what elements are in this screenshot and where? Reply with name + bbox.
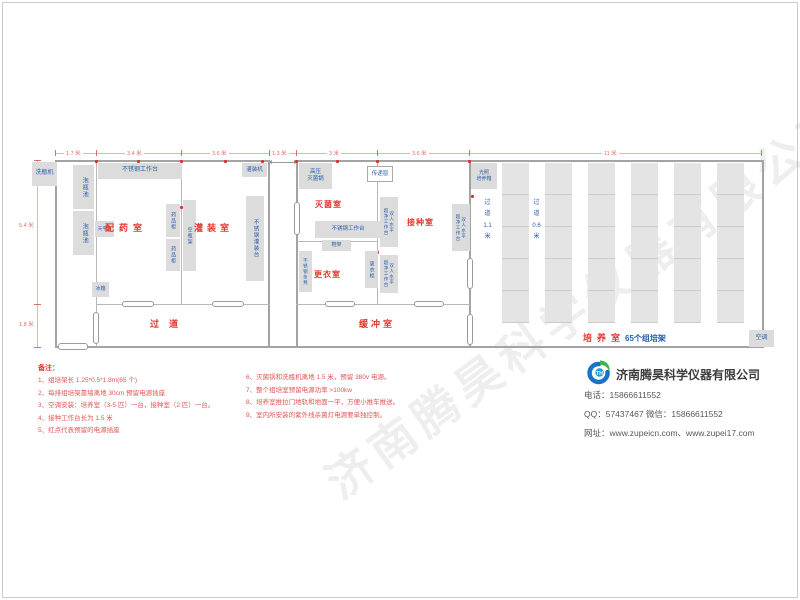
light-incubator: 光照 培养箱	[471, 163, 497, 189]
floor-plan-page: 济南腾昊科学仪器有限公司 1.7 米 3.4 米 3.6 米 1.3 米 3 米…	[0, 0, 800, 600]
dim-tick	[34, 304, 41, 305]
dim-label-3-6m: 3.6 米	[210, 149, 229, 157]
wall	[55, 160, 57, 348]
dim-tick	[96, 150, 97, 156]
notes-left-column: 备注： 1、组培架长 1.25*0.5*1.8m(65 个) 2、每排组培架靠墙…	[38, 363, 248, 441]
sterilization-room-label: 灭菌室	[315, 199, 342, 210]
culture-rack	[674, 163, 701, 323]
dim-tick	[55, 150, 56, 156]
note-item: 7、整个组培室预留电源功率 >100kw	[246, 388, 426, 395]
dim-label-3m: 3 米	[327, 149, 341, 157]
culture-room-caption: 培养室 65个组培架	[583, 331, 666, 344]
air-conditioner: 空调	[749, 330, 774, 347]
pass-window: 传递窗	[367, 166, 393, 182]
medicine-cabinet: 药品柜	[166, 204, 180, 237]
logo-swirl-icon: TH	[585, 359, 613, 387]
autoclave: 高压 灭菌锅	[299, 163, 332, 189]
stainless-worktable: 不锈钢工作台	[315, 221, 381, 238]
inoculation-room-label: 接种室	[407, 217, 434, 228]
culture-rack	[502, 163, 529, 323]
clean-bench: 双人水平 超净工作台	[452, 204, 470, 251]
fridge: 冰箱	[92, 282, 109, 297]
culture-rack	[588, 163, 615, 323]
dim-tick	[469, 150, 470, 156]
note-item: 9、室内所安装的紫外线杀菌灯电源要单独控制。	[246, 413, 426, 420]
dim-tick	[761, 150, 762, 156]
bottle-soaking-pool: 泡瓶池	[73, 165, 94, 209]
note-item: 8、培养室推拉门地轨和地面一平，方便小推车推送。	[246, 400, 426, 407]
note-item: 5、红点代表预留的电源插座	[38, 428, 248, 435]
wall	[268, 160, 270, 348]
door	[58, 343, 88, 350]
wall	[55, 160, 270, 162]
power-socket-dot	[224, 160, 227, 163]
aisle-width-label: 过道 0.6 米	[531, 198, 542, 244]
note-item: 1、组培架长 1.25*0.5*1.8m(65 个)	[38, 378, 248, 385]
filling-machine: 灌装机	[242, 163, 267, 177]
dim-label-3-6m-b: 3.6 米	[410, 149, 429, 157]
note-item: 3、空调安装：培养室（3-5 匹）一台，接种室（2 匹）一台。	[38, 403, 248, 410]
power-socket-dot	[336, 160, 339, 163]
power-socket-dot	[295, 160, 298, 163]
company-phone: 电话：15866611552	[584, 389, 755, 401]
stainless-filling-table: 不锈钢灌装台	[246, 196, 264, 281]
corridor-label: 过道	[150, 317, 188, 330]
notes-right-column: 6、灭菌锅和洗瓶机离地 1.5 米，预留 380v 电源。 7、整个组培室预留电…	[246, 375, 426, 425]
company-website: 网址：www.zupeicn.com、www.zupei17.com	[584, 427, 755, 439]
door	[212, 301, 244, 307]
dim-label-1-7m: 1.7 米	[64, 149, 83, 157]
locker: 更衣柜	[365, 251, 378, 288]
svg-text:TH: TH	[596, 371, 603, 377]
door	[467, 258, 473, 289]
wall	[469, 346, 764, 348]
wall	[55, 346, 470, 348]
bottle-soaking-pool: 泡瓶池	[73, 211, 94, 255]
dim-tick	[296, 150, 297, 156]
note-item: 2、每排组培架靠墙离地 30cm 预留电源插座	[38, 391, 248, 398]
bottle-washer: 洗瓶机	[32, 162, 57, 186]
medicine-prep-room-label: 配药室	[105, 221, 147, 234]
wall	[762, 160, 764, 348]
dim-label-11m: 11 米	[602, 149, 619, 157]
culture-rack	[545, 163, 572, 323]
dim-tick	[34, 160, 41, 161]
dim-label-1-3m: 1.3 米	[270, 149, 289, 157]
company-qq-wechat: QQ：57437467 微信：15866611552	[584, 408, 755, 420]
culture-rack	[631, 163, 658, 323]
stainless-worktable: 不锈钢工作台	[98, 163, 182, 179]
dim-tick	[181, 150, 182, 156]
stainless-bench: 不锈钢条凳	[299, 251, 312, 292]
empty-bottle-rack: 空瓶架	[183, 200, 196, 271]
culture-room-label: 培养室	[583, 331, 625, 344]
buffer-room-label: 缓冲室	[359, 317, 395, 330]
door	[414, 301, 444, 307]
shoe-rack: 鞋架	[322, 240, 351, 251]
dim-label-5-4m: 5.4 米	[17, 221, 36, 229]
wall	[469, 160, 764, 162]
power-socket-dot	[471, 195, 474, 198]
aisle-width-label: 过道 1.1 米	[482, 198, 493, 244]
door	[93, 312, 99, 344]
note-item: 6、灭菌锅和洗瓶机离地 1.5 米，预留 380v 电源。	[246, 375, 426, 382]
wall	[296, 160, 298, 348]
dim-tick	[34, 347, 41, 348]
arrow-left-icon	[268, 160, 272, 164]
wall	[296, 160, 471, 162]
door	[122, 301, 154, 307]
door	[294, 202, 300, 235]
dim-label-3-4m: 3.4 米	[125, 149, 144, 157]
door	[467, 314, 473, 345]
note-item: 4、接种工作台长为 1.5 米	[38, 416, 248, 423]
changing-room-label: 更衣室	[314, 269, 341, 280]
wall	[181, 160, 182, 305]
clean-bench: 双人水平 超净工作台	[380, 255, 398, 293]
rack-count-label: 65个组培架	[625, 333, 666, 344]
notes-title: 备注：	[38, 363, 248, 373]
dim-label-1-8m: 1.8 米	[17, 320, 36, 328]
filling-room-label: 灌装室	[194, 221, 233, 234]
company-logo: TH	[585, 359, 613, 387]
power-socket-dot	[376, 160, 379, 163]
company-name: 济南腾昊科学仪器有限公司	[616, 366, 760, 383]
door	[325, 301, 355, 307]
dimension-line-top	[55, 153, 762, 154]
entrance-arrow-line	[271, 162, 295, 163]
culture-rack	[717, 163, 744, 323]
company-contacts: 电话：15866611552 QQ：57437467 微信：1586661155…	[584, 389, 755, 446]
dimension-line-left	[37, 160, 38, 348]
dim-tick	[377, 150, 378, 156]
medicine-cabinet: 药品柜	[166, 239, 180, 271]
clean-bench: 双人水平 超净工作台	[380, 197, 398, 247]
